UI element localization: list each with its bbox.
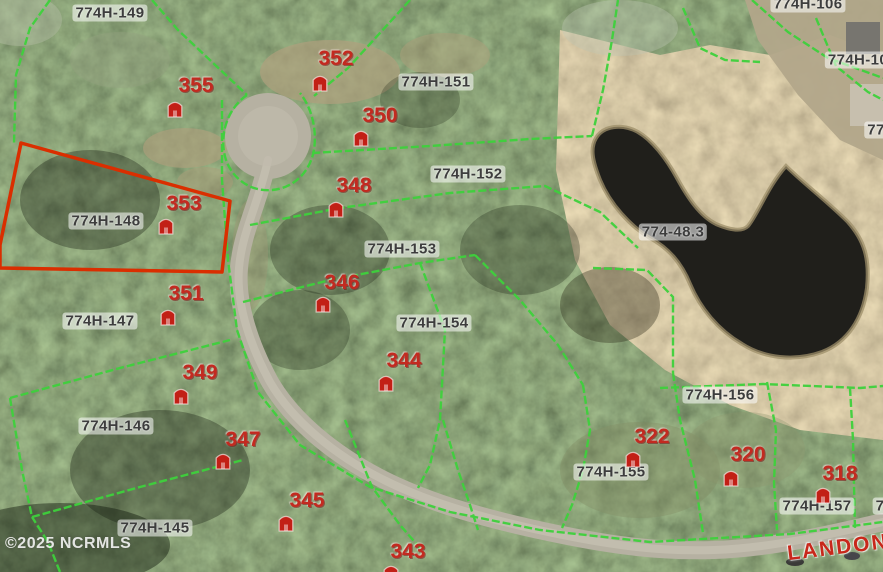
parcel-id-label: 774-48.3 (639, 224, 707, 241)
lot-number-label: 355 (178, 74, 213, 98)
lot-number-label: 353 (166, 192, 201, 216)
lot-number-label: 345 (289, 489, 324, 513)
parcel-id-label: 774H-151 (398, 74, 473, 91)
lot-number-label: 348 (336, 174, 371, 198)
parcel-id-label: 774H-149 (72, 5, 147, 22)
house-icon (157, 215, 175, 235)
house-icon (159, 306, 177, 326)
parcel-id-label: 774H-154 (396, 315, 471, 332)
house-icon (311, 72, 329, 92)
house-icon (814, 484, 832, 504)
house-icon (172, 385, 190, 405)
lot-number-label: 352 (318, 47, 353, 71)
lot-number-label: 346 (324, 271, 359, 295)
parcel-id-label: 774H-146 (78, 418, 153, 435)
lot-number-label: 347 (225, 428, 260, 452)
house-icon (722, 467, 740, 487)
parcel-id-label: 77 (864, 122, 883, 139)
parcel-id-label: 774H-145 (117, 520, 192, 537)
lot-number-label: 320 (730, 443, 765, 467)
house-icon (377, 372, 395, 392)
house-icon (382, 562, 400, 572)
house-icon (277, 512, 295, 532)
parcel-id-label: 774H-153 (364, 241, 439, 258)
lot-number-label: 322 (634, 425, 669, 449)
lot-number-label: 344 (386, 349, 421, 373)
parcel-id-label: 774H-148 (68, 213, 143, 230)
parcel-id-label: 774H-147 (62, 313, 137, 330)
house-icon (166, 98, 184, 118)
parcel-id-label: 7 (873, 498, 883, 515)
lot-number-label: 349 (182, 361, 217, 385)
house-icon (327, 198, 345, 218)
lot-number-label: 351 (168, 282, 203, 306)
aerial-parcel-map[interactable]: 774H-149 774H-151 774H-152 774H-153 774H… (0, 0, 883, 572)
lot-number-label: 350 (362, 104, 397, 128)
lot-number-label: 343 (390, 540, 425, 564)
parcel-id-label: 774H-156 (682, 387, 757, 404)
parcel-id-label: 774H-152 (430, 166, 505, 183)
map-annotations: 774H-149 774H-151 774H-152 774H-153 774H… (0, 0, 883, 572)
parcel-id-label: 774H-106 (770, 0, 845, 13)
house-icon (624, 448, 642, 468)
house-icon (314, 293, 332, 313)
house-icon (352, 127, 370, 147)
parcel-id-label: 774H-10 (825, 52, 883, 69)
house-icon (214, 450, 232, 470)
lot-number-label: 318 (822, 462, 857, 486)
mls-watermark: ©2025 NCRMLS (5, 535, 131, 553)
